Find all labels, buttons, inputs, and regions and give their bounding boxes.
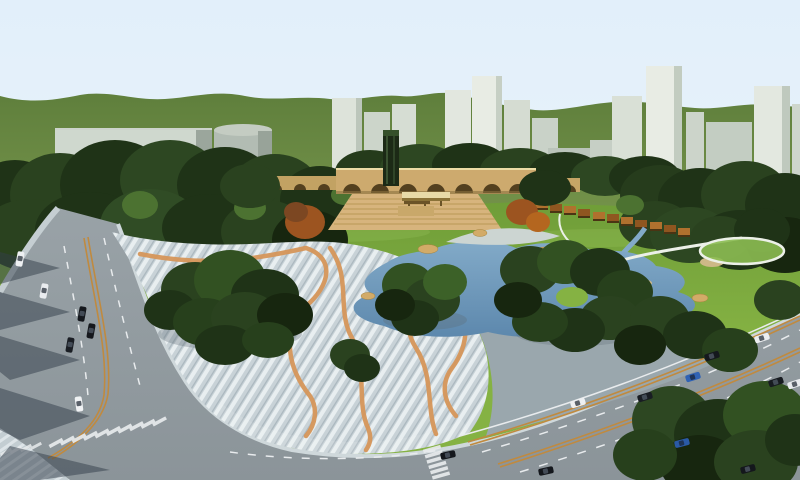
pavilion-roof bbox=[402, 192, 450, 198]
rendering-canvas bbox=[0, 0, 800, 480]
observation-tower bbox=[383, 134, 399, 186]
lawn-ring bbox=[700, 238, 784, 264]
inner-lawn-clearing bbox=[556, 287, 588, 307]
stage-platform bbox=[398, 206, 434, 216]
park-rendering bbox=[0, 0, 800, 480]
